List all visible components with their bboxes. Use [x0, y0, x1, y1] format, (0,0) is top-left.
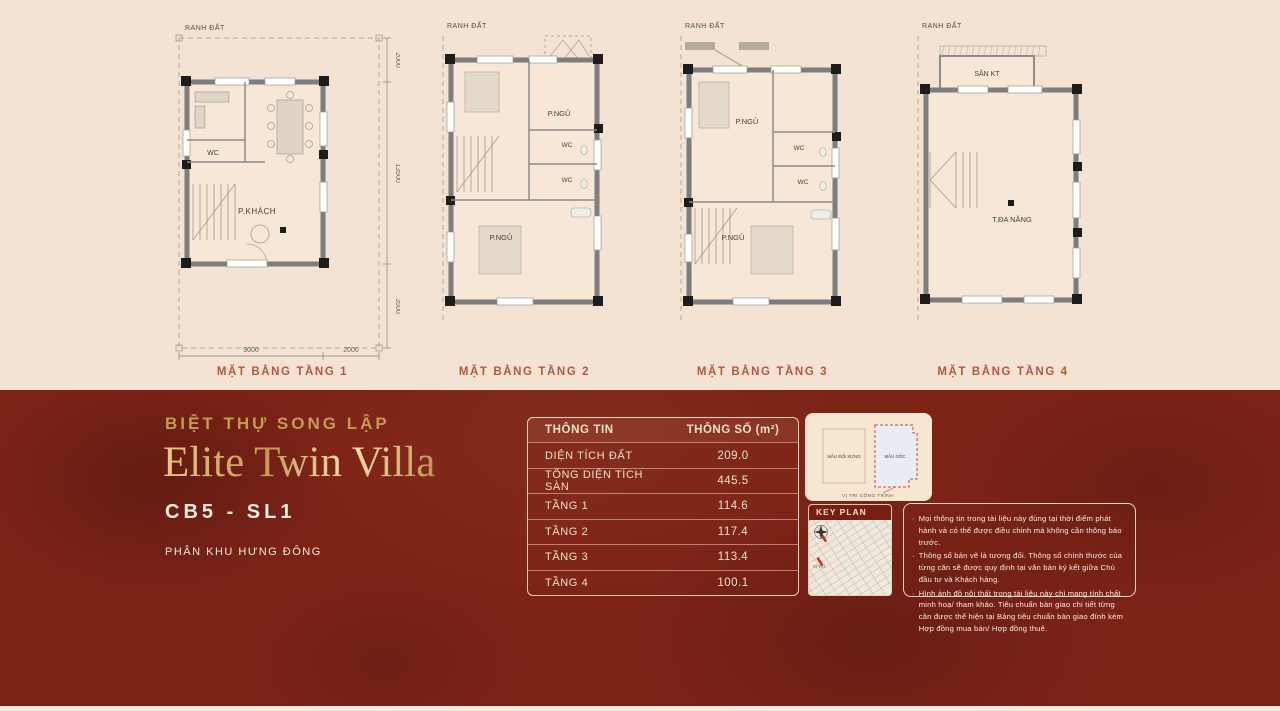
room-label-living: P.KHÁCH	[238, 207, 276, 216]
floor-plan-4-caption: MẶT BẰNG TẦNG 4	[912, 366, 1094, 378]
row-value: 113.4	[668, 551, 798, 563]
villa-name: Elite Twin Villa	[163, 438, 435, 487]
page-bottom-edge	[0, 706, 1280, 711]
dim-width: 9000	[243, 347, 259, 354]
keyplan-title: KEY PLAN	[809, 505, 891, 520]
floor-plan-3-drawing: RANH ĐẤT	[675, 12, 850, 332]
floor-plan-2-caption: MẶT BẰNG TẦNG 2	[437, 366, 612, 378]
disclaimer-box: · Mọi thông tin trong tài liệu này đúng …	[903, 503, 1136, 597]
row-value: 100.1	[668, 577, 798, 589]
disclaimer-text: Thông số bản vẽ là tương đối. Thông số c…	[919, 550, 1125, 585]
disclaimer-item: · Hình ảnh đồ nội thất trong tài liệu nà…	[912, 588, 1125, 635]
keyplan-card: KEY PLAN	[808, 504, 892, 596]
spec-header-value: THÔNG SỐ (m²)	[668, 424, 798, 436]
spec-table-header: THÔNG TIN THÔNG SỐ (m²)	[528, 418, 798, 442]
floor-plans-section: RANH ĐẤT	[0, 0, 1280, 390]
room-label-multi: T.ĐA NĂNG	[992, 215, 1032, 224]
row-value: 209.0	[668, 450, 798, 462]
room-label-wc1: WC	[794, 145, 805, 152]
villa-code: CB5 - SL1	[165, 501, 435, 524]
row-value: 117.4	[668, 526, 798, 538]
room-label-bed1: P.NGỦ	[736, 117, 759, 126]
villa-category: BIỆT THỰ SONG LẬP	[165, 414, 435, 434]
room-label-wc2: WC	[798, 179, 809, 186]
villa-zone: PHÂN KHU HƯNG ĐÔNG	[165, 546, 435, 558]
floor-plan-1-caption: MẶT BẰNG TẦNG 1	[165, 366, 400, 378]
dim-front: 2000	[394, 52, 400, 68]
boundary-label: RANH ĐẤT	[685, 20, 725, 30]
room-label-yard: SÂN KT	[974, 69, 1000, 78]
bullet-dot: ·	[912, 550, 915, 585]
boundary-label: RANH ĐẤT	[922, 20, 962, 30]
disclaimer-text: Mọi thông tin trong tài liệu này đúng tạ…	[919, 513, 1125, 548]
disclaimer-item: · Thông số bản vẽ là tương đối. Thông số…	[912, 550, 1125, 585]
variant-caption: VỊ TRÍ CÔNG TRÌNH	[842, 492, 894, 499]
floor-plan-2-drawing: RANH ĐẤT	[437, 12, 612, 332]
spec-header-info: THÔNG TIN	[528, 424, 668, 436]
keyplan-map: VỊ TRÍ	[809, 520, 891, 595]
boundary-label: RANH ĐẤT	[185, 22, 225, 32]
table-row: TẦNG 3 113.4	[528, 544, 798, 569]
row-value: 114.6	[668, 500, 798, 512]
row-label: TẦNG 4	[528, 577, 668, 589]
bullet-dot: ·	[912, 513, 915, 548]
floor-plan-1: RANH ĐẤT	[165, 12, 400, 378]
row-label: TẦNG 2	[528, 526, 668, 538]
floor-plan-4: RANH ĐẤT SÂN KT	[912, 12, 1094, 378]
table-row: TẦNG 2 117.4	[528, 519, 798, 544]
variant-card: MẪU ĐỐI XỨNG MẪU GỐC VỊ TRÍ CÔNG TRÌNH	[805, 413, 932, 501]
info-section: BIỆT THỰ SONG LẬP Elite Twin Villa CB5 -…	[0, 390, 1280, 711]
title-block: BIỆT THỰ SONG LẬP Elite Twin Villa CB5 -…	[165, 414, 435, 558]
room-label-wc1: WC	[562, 142, 573, 149]
room-label-wc: WC	[207, 150, 219, 157]
floor-plan-3-caption: MẶT BẰNG TẦNG 3	[675, 366, 850, 378]
dim-side: 2000	[343, 347, 359, 354]
table-row: TỔNG DIỆN TÍCH SÀN 445.5	[528, 468, 798, 493]
dim-rear: 3500	[394, 298, 400, 314]
room-label-bed1: P.NGỦ	[548, 109, 571, 118]
row-label: TẦNG 1	[528, 500, 668, 512]
disclaimer-text: Hình ảnh đồ nội thất trong tài liệu này …	[919, 588, 1125, 635]
row-label: DIỆN TÍCH ĐẤT	[528, 450, 668, 462]
dim-depth: 13500	[394, 163, 400, 183]
variant-left-label: MẪU ĐỐI XỨNG	[827, 454, 861, 459]
variant-diagram: MẪU ĐỐI XỨNG MẪU GỐC VỊ TRÍ CÔNG TRÌNH	[805, 413, 932, 501]
floor-plan-3: RANH ĐẤT	[675, 12, 850, 378]
spec-table: THÔNG TIN THÔNG SỐ (m²) DIỆN TÍCH ĐẤT 20…	[527, 417, 799, 596]
table-row: TẦNG 4 100.1	[528, 570, 798, 595]
floor-plan-4-drawing: RANH ĐẤT SÂN KT	[912, 12, 1094, 332]
row-label: TỔNG DIỆN TÍCH SÀN	[528, 469, 668, 493]
room-label-bed2: P.NGỦ	[722, 233, 745, 242]
table-row: TẦNG 1 114.6	[528, 493, 798, 518]
disclaimer-item: · Mọi thông tin trong tài liệu này đúng …	[912, 513, 1125, 548]
floor-plan-1-drawing: RANH ĐẤT	[165, 12, 400, 364]
bullet-dot: ·	[912, 588, 915, 635]
floor-plan-2: RANH ĐẤT	[437, 12, 612, 378]
room-label-wc2: WC	[562, 177, 573, 184]
room-label-bed2: P.NGỦ	[490, 233, 513, 242]
brochure-page: RANH ĐẤT	[0, 0, 1280, 711]
variant-right-label: MẪU GỐC	[885, 454, 906, 459]
row-label: TẦNG 3	[528, 551, 668, 563]
row-value: 445.5	[668, 475, 798, 487]
keyplan-location-label: VỊ TRÍ	[813, 564, 826, 569]
table-row: DIỆN TÍCH ĐẤT 209.0	[528, 442, 798, 467]
boundary-label: RANH ĐẤT	[447, 20, 487, 30]
